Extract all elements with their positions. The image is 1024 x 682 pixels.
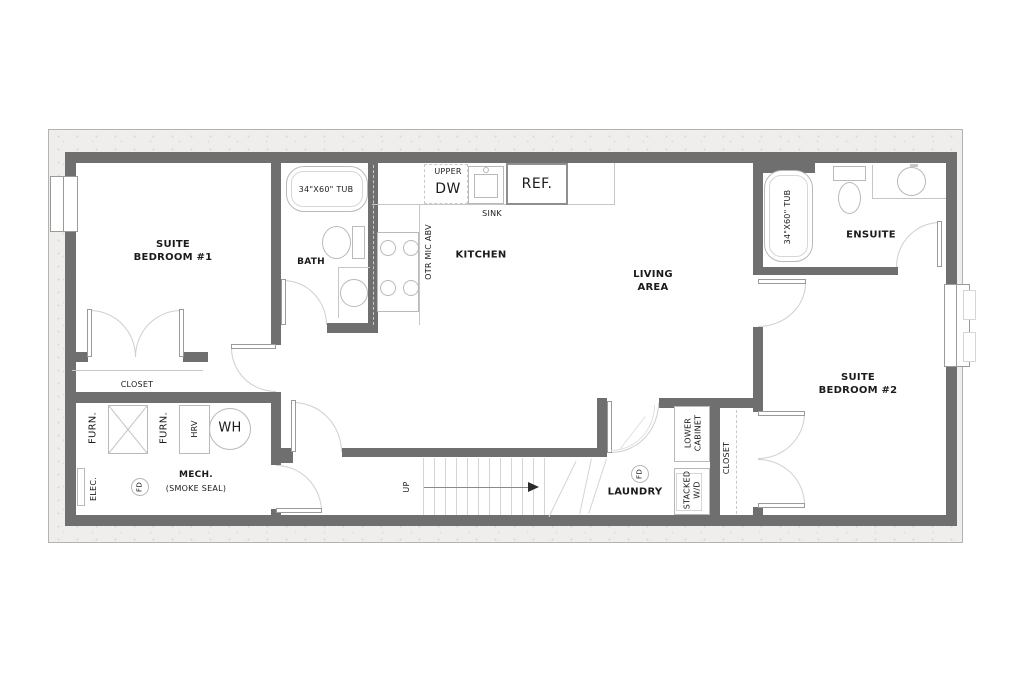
wall-mech-north	[65, 392, 281, 403]
label-fridge: REF.	[522, 175, 553, 193]
bath-vanity-edge	[338, 267, 370, 268]
closet2-door-leaf	[758, 411, 805, 416]
closet1-door-leaf	[87, 309, 92, 357]
wall-closet1-top-right	[183, 352, 208, 362]
wall-left-upper	[65, 152, 76, 178]
wall-laundry-closet2	[710, 402, 720, 515]
electrical-panel	[77, 468, 85, 506]
stair-tread	[544, 458, 545, 515]
bath-toilet-bowl	[322, 226, 351, 259]
ensuite-vanity-edge	[872, 198, 946, 199]
label-hrv: HRV	[190, 420, 200, 437]
bath-vanity-edge	[338, 267, 339, 318]
counter-edge-east	[614, 163, 615, 205]
closet1-shelf	[72, 370, 203, 371]
label-dishwasher: DW	[435, 180, 461, 198]
label-smoke-seal: (SMOKE SEAL)	[166, 484, 226, 494]
ensuite-door-leaf	[937, 221, 942, 267]
living-window-mullion	[956, 285, 957, 366]
label-laundry-fd: FD	[635, 469, 644, 479]
label-ensuite-tub: 34"X60" TUB	[783, 190, 793, 245]
label-water-heater: WH	[218, 421, 241, 438]
ensuite-toilet-tank	[833, 166, 866, 181]
kitchen-sink-basin	[474, 174, 498, 198]
bedroom1-door-leaf	[231, 344, 276, 349]
living-window-sill	[963, 290, 976, 320]
counter-edge-west	[419, 204, 420, 325]
upper-cabinet-dashed	[373, 165, 374, 325]
label-stacked-wd: STACKED W/D	[683, 471, 704, 509]
label-mech: MECH.	[179, 470, 213, 482]
bedroom1-window-mullion	[63, 177, 64, 231]
kitchen-faucet	[483, 167, 489, 173]
label-bedroom1: SUITE BEDROOM #1	[134, 238, 213, 264]
wall-closet2-stub	[753, 507, 763, 515]
closet1-door-leaf	[179, 309, 184, 357]
bath-door-leaf	[281, 279, 286, 325]
label-closet1: CLOSET	[121, 380, 154, 390]
wall-ensuite-west	[753, 163, 763, 275]
wall-stair-laundry	[597, 398, 607, 448]
label-up: UP	[402, 481, 412, 492]
label-sink: SINK	[482, 209, 502, 219]
label-closet2: CLOSET	[722, 442, 732, 475]
label-upper: UPPER	[434, 167, 461, 177]
wall-right-lower	[946, 365, 957, 526]
bath-sink	[340, 279, 368, 307]
stair-direction-line	[424, 487, 528, 488]
floor-plan: SUITE BEDROOM #1 CLOSET BATH 34"X60" TUB…	[0, 0, 1024, 682]
label-electrical: ELEC.	[89, 477, 99, 501]
bedroom1-window	[50, 176, 78, 232]
burner	[403, 240, 419, 256]
furnace-unit	[108, 405, 148, 454]
wall-bath-south	[327, 323, 378, 333]
ensuite-sink	[897, 167, 926, 196]
wall-bed1-bath	[271, 163, 281, 345]
wall-right-upper	[946, 152, 957, 286]
wall-left-lower	[65, 230, 76, 526]
living-window-sill	[963, 332, 976, 362]
wall-bed2-west	[753, 327, 763, 412]
label-mech-fd: FD	[135, 482, 144, 492]
wall-hall-west	[271, 392, 281, 465]
label-bath: BATH	[297, 257, 325, 269]
closet2-rod	[736, 410, 737, 514]
burner	[380, 280, 396, 296]
stair-direction-arrow	[528, 482, 539, 492]
burner	[380, 240, 396, 256]
label-kitchen: KITCHEN	[456, 249, 507, 262]
label-bath-tub: 34"X60" TUB	[299, 185, 354, 195]
label-ensuite: ENSUITE	[846, 229, 896, 242]
label-living: LIVING AREA	[633, 268, 673, 294]
wall-bottom	[65, 515, 950, 526]
counter-edge-north	[372, 204, 615, 205]
mech-door-leaf	[276, 508, 322, 513]
ensuite-faucet	[910, 164, 918, 167]
label-laundry: LAUNDRY	[608, 486, 663, 499]
label-otr-mic: OTR MIC ABV	[424, 224, 434, 280]
closet2-door-leaf	[758, 503, 805, 508]
wall-closet1-top-left	[65, 352, 88, 362]
label-lower-cabinet: LOWER CABINET	[684, 415, 705, 452]
wall-ensuite-south	[753, 267, 898, 275]
ensuite-toilet-bowl	[838, 182, 861, 214]
burner	[403, 280, 419, 296]
hall-door-leaf	[291, 400, 296, 452]
label-furnace1: FURN.	[87, 412, 100, 444]
bedroom2-door-leaf	[758, 279, 806, 284]
ensuite-vanity-edge	[872, 165, 873, 199]
label-bedroom2: SUITE BEDROOM #2	[819, 371, 898, 397]
label-furnace2: FURN.	[158, 412, 171, 444]
bath-toilet-tank	[352, 226, 365, 259]
wall-top	[65, 152, 950, 163]
wall-stair-north	[342, 448, 607, 457]
